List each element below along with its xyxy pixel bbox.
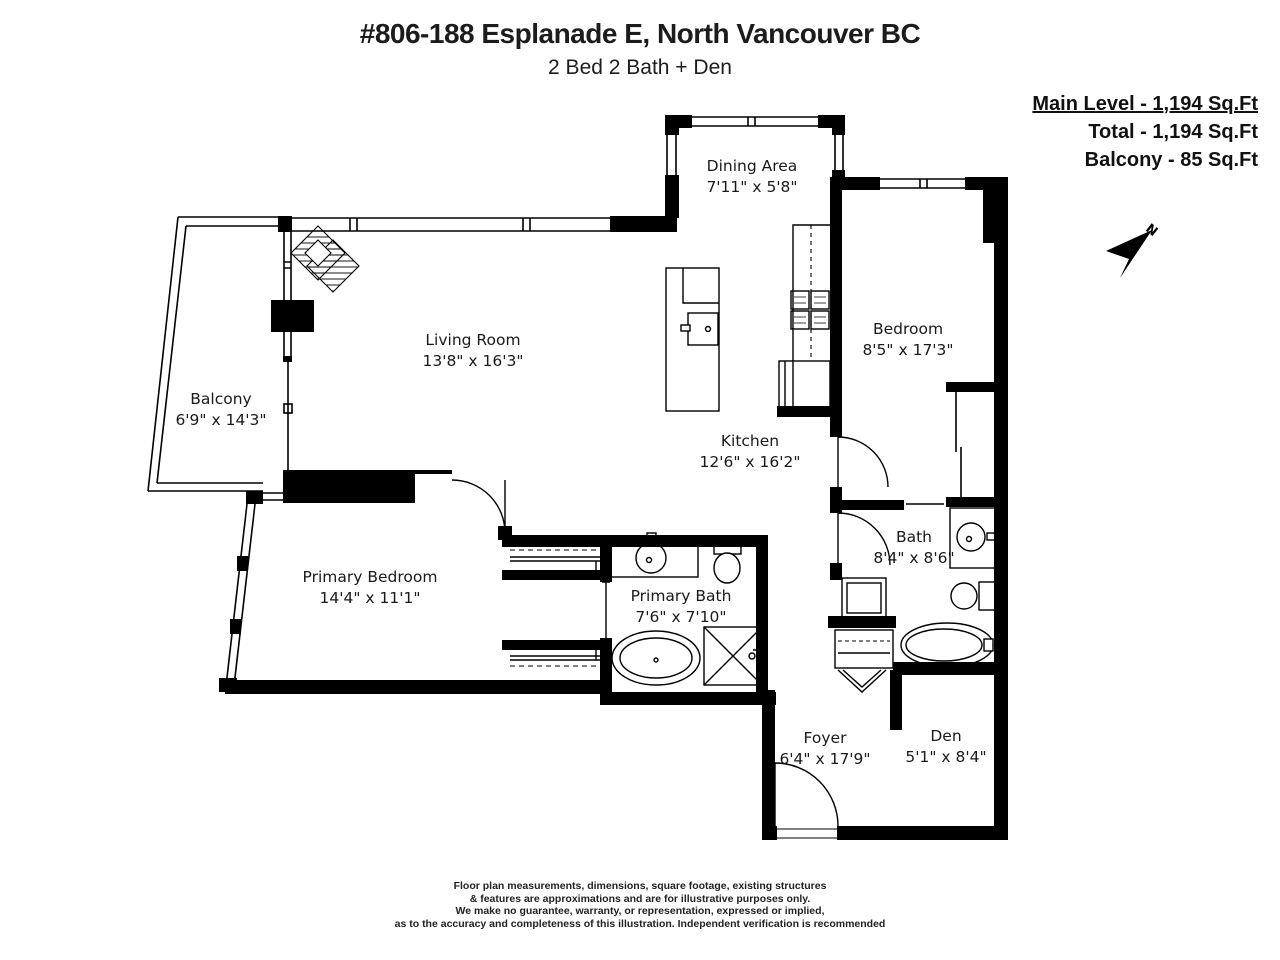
disclaimer-line: Floor plan measurements, dimensions, squ… [0, 880, 1280, 893]
walls [219, 115, 1008, 840]
room-name: Primary Bath [631, 586, 732, 607]
floor-plan-drawing: N [0, 0, 1280, 960]
room-label-bedroom: Bedroom 8'5" x 17'3" [862, 319, 953, 361]
laundry-closet [842, 578, 886, 618]
room-dims: 8'4" x 8'6" [873, 548, 954, 569]
room-label-foyer: Foyer 6'4" x 17'9" [779, 728, 870, 770]
room-label-bath: Bath 8'4" x 8'6" [873, 527, 954, 569]
room-label-dining: Dining Area 7'11" x 5'8" [706, 156, 797, 198]
disclaimer: Floor plan measurements, dimensions, squ… [0, 880, 1280, 930]
room-dims: 8'5" x 17'3" [862, 340, 953, 361]
room-name: Primary Bedroom [303, 567, 438, 588]
room-label-primary-bedroom: Primary Bedroom 14'4" x 11'1" [303, 567, 438, 609]
room-name: Kitchen [700, 431, 801, 452]
room-dims: 13'8" x 16'3" [423, 351, 524, 372]
room-dims: 12'6" x 16'2" [700, 452, 801, 473]
room-label-kitchen: Kitchen 12'6" x 16'2" [700, 431, 801, 473]
foyer-closet [835, 630, 893, 668]
room-name: Balcony [175, 389, 266, 410]
room-dims: 14'4" x 11'1" [303, 588, 438, 609]
room-label-living: Living Room 13'8" x 16'3" [423, 330, 524, 372]
room-name: Bedroom [862, 319, 953, 340]
disclaimer-line: as to the accuracy and completeness of t… [0, 918, 1280, 931]
kitchen-counter [779, 225, 830, 408]
room-name: Living Room [423, 330, 524, 351]
fireplace-diamond-decor [291, 226, 359, 292]
room-dims: 6'4" x 17'9" [779, 749, 870, 770]
room-label-primary-bath: Primary Bath 7'6" x 7'10" [631, 586, 732, 628]
room-label-den: Den 5'1" x 8'4" [905, 726, 986, 768]
room-dims: 7'6" x 7'10" [631, 607, 732, 628]
room-dims: 5'1" x 8'4" [905, 747, 986, 768]
room-name: Den [905, 726, 986, 747]
room-dims: 6'9" x 14'3" [175, 410, 266, 431]
balcony-outline [148, 217, 285, 491]
room-name: Bath [873, 527, 954, 548]
doors [452, 437, 944, 838]
room-name: Dining Area [706, 156, 797, 177]
north-arrow-icon: N [1106, 221, 1160, 278]
kitchen-island [666, 268, 719, 411]
floorplan-page: #806-188 Esplanade E, North Vancouver BC… [0, 0, 1280, 960]
disclaimer-line: We make no guarantee, warranty, or repre… [0, 905, 1280, 918]
room-dims: 7'11" x 5'8" [706, 177, 797, 198]
room-name: Foyer [779, 728, 870, 749]
disclaimer-line: & features are approximations and are fo… [0, 893, 1280, 906]
room-label-balcony: Balcony 6'9" x 14'3" [175, 389, 266, 431]
